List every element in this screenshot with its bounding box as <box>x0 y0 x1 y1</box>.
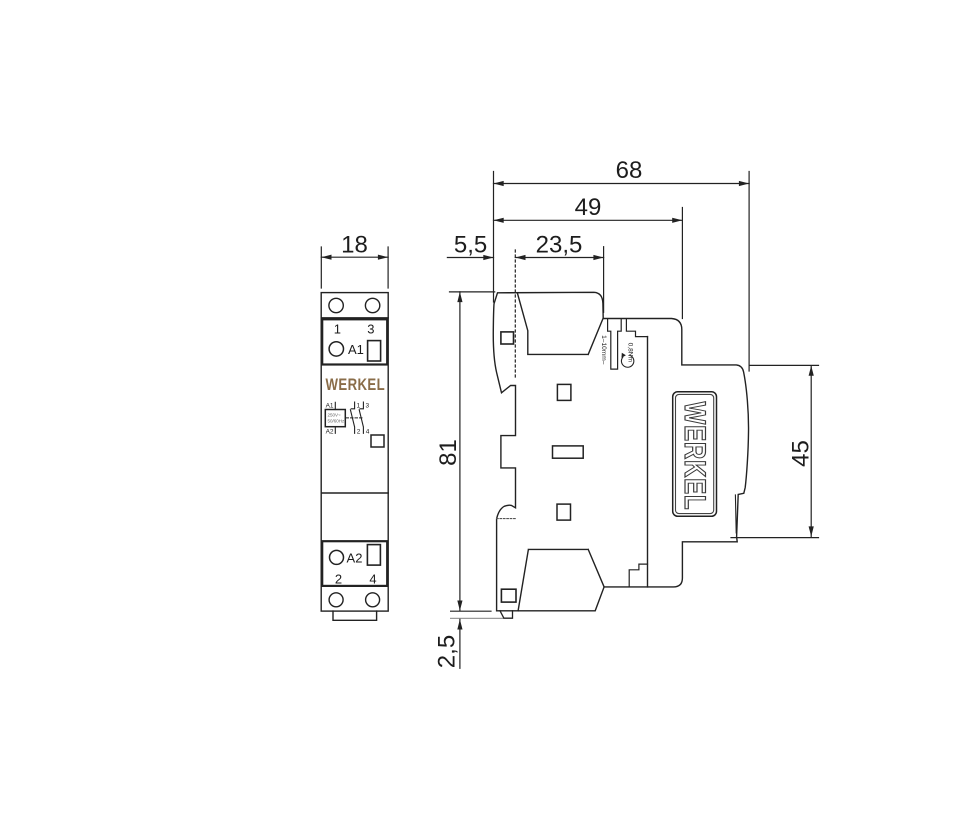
svg-text:49: 49 <box>575 194 602 221</box>
svg-text:A1: A1 <box>326 403 334 410</box>
svg-text:2: 2 <box>335 572 342 587</box>
svg-text:0,8Nm: 0,8Nm <box>627 343 634 363</box>
svg-text:250V~: 250V~ <box>328 413 342 418</box>
svg-text:WERKEL: WERKEL <box>326 375 386 394</box>
svg-text:WERKEL: WERKEL <box>678 402 712 511</box>
svg-text:18: 18 <box>341 232 368 259</box>
svg-text:5,5: 5,5 <box>454 232 487 259</box>
svg-text:3: 3 <box>366 403 370 410</box>
svg-text:81: 81 <box>435 439 462 466</box>
svg-text:68: 68 <box>616 157 643 184</box>
svg-text:3: 3 <box>367 321 374 336</box>
svg-text:2,5: 2,5 <box>434 635 461 668</box>
svg-text:45: 45 <box>788 440 815 467</box>
svg-text:A2: A2 <box>326 429 334 436</box>
svg-text:4: 4 <box>366 428 370 435</box>
svg-text:A2: A2 <box>347 550 363 565</box>
svg-text:2: 2 <box>357 428 361 435</box>
svg-text:50/60Hz: 50/60Hz <box>328 419 346 424</box>
svg-text:23,5: 23,5 <box>536 232 583 259</box>
svg-text:A1: A1 <box>348 342 364 357</box>
svg-text:4: 4 <box>369 572 376 587</box>
svg-text:1: 1 <box>334 321 341 336</box>
svg-text:1–10mm–: 1–10mm– <box>600 335 607 365</box>
